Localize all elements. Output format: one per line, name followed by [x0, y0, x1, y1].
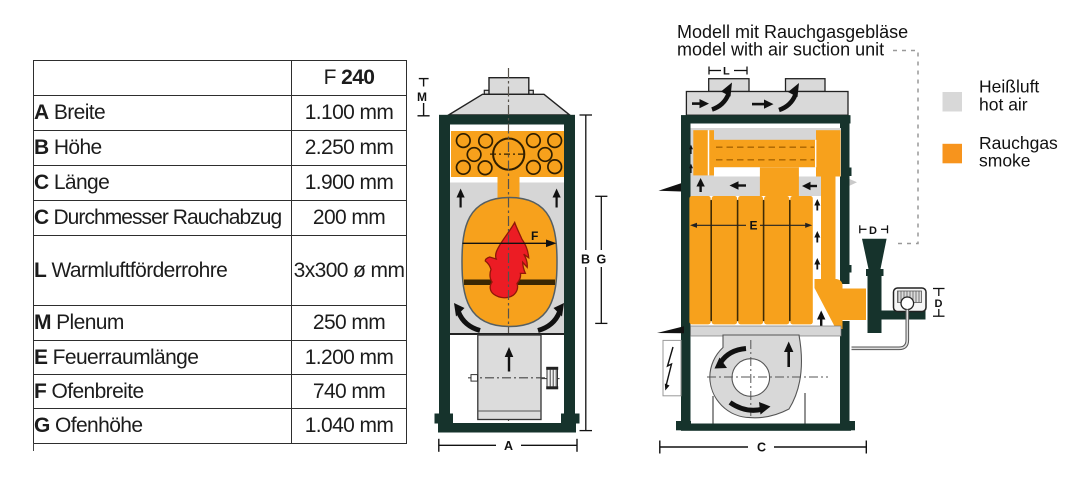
svg-text:B: B — [581, 253, 590, 267]
svg-text:model with air suction unit: model with air suction unit — [677, 40, 884, 60]
svg-text:L: L — [723, 66, 730, 78]
svg-text:D: D — [935, 298, 943, 310]
svg-text:hot air: hot air — [979, 95, 1028, 115]
svg-text:G: G — [597, 253, 607, 267]
svg-text:C: C — [757, 441, 766, 455]
svg-text:Heißluft: Heißluft — [979, 77, 1039, 97]
svg-text:E: E — [750, 219, 758, 233]
svg-text:A: A — [504, 439, 513, 453]
svg-text:M: M — [417, 90, 427, 104]
svg-text:D: D — [869, 225, 877, 237]
svg-text:smoke: smoke — [979, 150, 1031, 170]
svg-text:F: F — [531, 229, 538, 243]
